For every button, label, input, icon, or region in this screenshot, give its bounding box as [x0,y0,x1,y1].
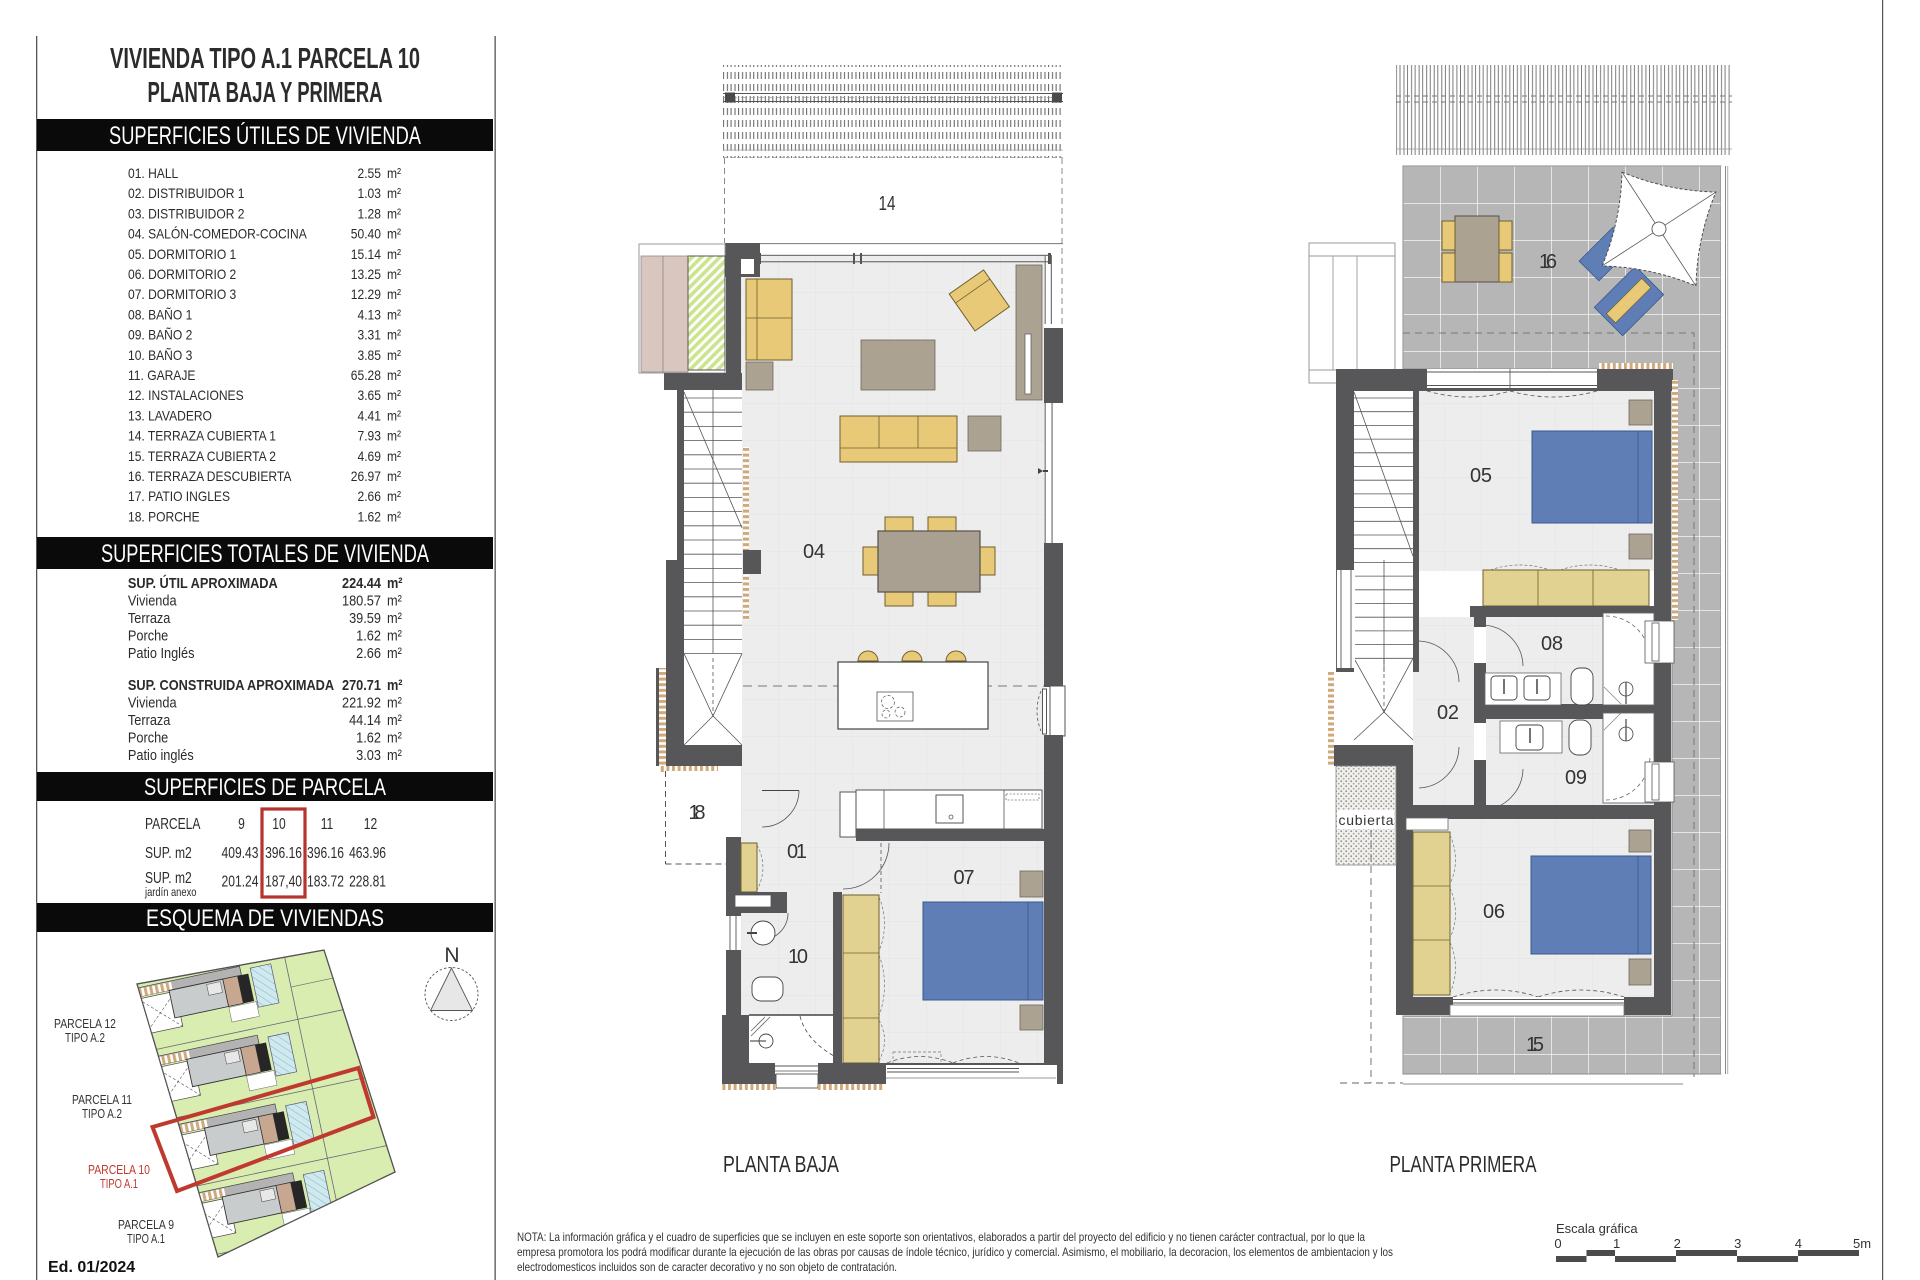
svg-text:11. GARAJE: 11. GARAJE [128,367,196,383]
svg-text:11: 11 [321,815,334,833]
svg-text:50.40: 50.40 [351,226,381,242]
svg-text:m²: m² [387,626,402,643]
svg-text:39.59: 39.59 [349,609,381,626]
svg-text:270.71: 270.71 [342,676,381,693]
svg-text:183.72: 183.72 [307,872,344,890]
svg-text:01: 01 [787,841,807,863]
svg-text:05: 05 [1470,465,1492,487]
svg-text:Porche: Porche [128,728,169,745]
svg-text:Patio Inglés: Patio Inglés [128,644,195,661]
svg-text:m²: m² [387,693,402,710]
svg-text:m²: m² [387,286,402,302]
svg-text:empresa promotora los podrá: empresa promotora los podrá modificar du… [517,1245,1393,1259]
svg-text:m²: m² [387,367,402,383]
svg-text:PLANTA PRIMERA: PLANTA PRIMERA [1390,1151,1537,1177]
svg-text:SUP. m2: SUP. m2 [145,844,192,862]
svg-text:PARCELA 9: PARCELA 9 [118,1218,174,1232]
svg-text:65.28: 65.28 [351,367,381,383]
svg-text:396.16: 396.16 [265,844,302,862]
svg-text:m²: m² [387,306,402,322]
svg-text:m²: m² [387,676,403,693]
svg-text:5m: 5m [1853,1236,1871,1251]
svg-text:Vivienda: Vivienda [128,693,177,710]
svg-text:0: 0 [1554,1236,1561,1251]
svg-text:09. BAÑO 2: 09. BAÑO 2 [128,327,192,343]
svg-text:PLANTA BAJA Y PRIMERA: PLANTA BAJA Y PRIMERA [148,77,383,109]
svg-text:2.55: 2.55 [358,165,381,181]
svg-text:14: 14 [879,193,896,215]
svg-text:13.25: 13.25 [351,266,381,282]
svg-text:m²: m² [387,266,402,282]
svg-text:3.65: 3.65 [358,387,381,403]
svg-text:3.03: 3.03 [356,746,381,763]
svg-text:12.29: 12.29 [351,286,381,302]
svg-text:1.62: 1.62 [356,728,381,745]
svg-text:396.16: 396.16 [307,844,344,862]
svg-text:12. INSTALACIONES: 12. INSTALACIONES [128,387,244,403]
svg-text:15.14: 15.14 [351,246,381,262]
svg-text:06: 06 [1483,901,1505,923]
svg-text:05. DORMITORIO 1: 05. DORMITORIO 1 [128,246,236,262]
svg-text:180.57: 180.57 [342,591,381,608]
svg-text:SUPERFICIES DE PARCELA: SUPERFICIES DE PARCELA [144,774,386,801]
svg-text:08: 08 [1541,633,1563,655]
svg-text:m²: m² [387,591,402,608]
svg-text:Terraza: Terraza [128,609,171,626]
svg-text:02: 02 [1437,702,1459,724]
svg-text:m²: m² [387,468,402,484]
svg-text:m²: m² [387,165,402,181]
svg-text:m²: m² [387,488,402,504]
svg-text:10: 10 [272,815,286,833]
svg-text:PARCELA 10: PARCELA 10 [88,1163,150,1177]
svg-text:Vivienda: Vivienda [128,591,177,608]
svg-text:44.14: 44.14 [349,711,381,728]
svg-text:m²: m² [387,508,402,524]
svg-text:m²: m² [387,205,402,221]
svg-text:TIPO A.1: TIPO A.1 [127,1232,165,1246]
svg-text:2.66: 2.66 [358,488,381,504]
svg-text:SUPERFICIES TOTALES DE VIVIEND: SUPERFICIES TOTALES DE VIVIENDA [101,540,429,568]
svg-text:SUPERFICIES ÚTILES DE VIVIENDA: SUPERFICIES ÚTILES DE VIVIENDA [109,121,421,150]
svg-text:electrodomesticos incluidos so: electrodomesticos incluidos son de carac… [517,1260,897,1274]
svg-text:PARCELA: PARCELA [145,815,201,833]
svg-text:409.43: 409.43 [222,844,259,862]
svg-text:07: 07 [954,867,975,889]
svg-text:m²: m² [387,407,402,423]
svg-text:14. TERRAZA CUBIERTA 1: 14. TERRAZA CUBIERTA 1 [128,428,276,444]
svg-text:SUP. ÚTIL APROXIMADA: SUP. ÚTIL APROXIMADA [128,573,278,591]
svg-text:m²: m² [387,574,403,591]
svg-text:16. TERRAZA DESCUBIERTA: 16. TERRAZA DESCUBIERTA [128,468,292,484]
svg-text:01. HALL: 01. HALL [128,165,178,181]
svg-text:03. DISTRIBUIDOR 2: 03. DISTRIBUIDOR 2 [128,205,245,221]
svg-text:Terraza: Terraza [128,711,171,728]
svg-text:187,40: 187,40 [265,872,302,890]
svg-text:N: N [444,944,459,967]
svg-text:26.97: 26.97 [351,468,381,484]
svg-text:3: 3 [1734,1236,1741,1251]
svg-text:16: 16 [1539,251,1557,273]
svg-text:m²: m² [387,644,402,661]
svg-text:7.93: 7.93 [358,428,381,444]
svg-text:m²: m² [387,728,402,745]
svg-text:4: 4 [1795,1236,1802,1251]
svg-text:jardín anexo: jardín anexo [144,886,196,899]
svg-text:15. TERRAZA CUBIERTA 2: 15. TERRAZA CUBIERTA 2 [128,448,276,464]
svg-text:18. PORCHE: 18. PORCHE [128,508,200,524]
svg-text:15: 15 [1526,1034,1544,1056]
svg-text:3.85: 3.85 [358,347,381,363]
svg-text:228.81: 228.81 [349,872,386,890]
svg-text:1.62: 1.62 [356,626,381,643]
svg-text:Patio inglés: Patio inglés [128,746,194,763]
svg-text:07. DORMITORIO 3: 07. DORMITORIO 3 [128,286,236,302]
svg-text:m²: m² [387,226,402,242]
svg-text:02. DISTRIBUIDOR 1: 02. DISTRIBUIDOR 1 [128,185,245,201]
svg-text:4.13: 4.13 [358,306,381,322]
svg-text:PARCELA 11: PARCELA 11 [72,1093,132,1107]
svg-text:06. DORMITORIO 2: 06. DORMITORIO 2 [128,266,236,282]
svg-text:9: 9 [238,815,245,833]
svg-text:2: 2 [1674,1236,1681,1251]
svg-text:08. BAÑO 1: 08. BAÑO 1 [128,306,192,322]
svg-text:1: 1 [1613,1236,1620,1251]
svg-text:TIPO A.2: TIPO A.2 [65,1031,105,1045]
svg-text:09: 09 [1565,767,1587,789]
svg-text:224.44: 224.44 [342,574,381,591]
svg-text:10: 10 [788,946,808,968]
svg-text:1.62: 1.62 [358,508,381,524]
svg-text:3.31: 3.31 [358,327,381,343]
svg-text:NOTA: La información gráfic: NOTA: La información gráfica y el cuadro… [517,1230,1365,1244]
svg-text:04. SALÓN-COMEDOR-COCINA: 04. SALÓN-COMEDOR-COCINA [128,226,307,242]
svg-text:Escala gráfica: Escala gráfica [1556,1221,1638,1236]
svg-text:SUP. m2: SUP. m2 [145,869,192,887]
svg-text:463.96: 463.96 [349,844,386,862]
svg-text:1.28: 1.28 [358,205,381,221]
svg-text:SUP. CONSTRUIDA APROXIMADA: SUP. CONSTRUIDA APROXIMADA [128,676,334,693]
svg-text:m²: m² [387,185,402,201]
svg-text:m²: m² [387,428,402,444]
svg-text:PLANTA BAJA: PLANTA BAJA [723,1151,839,1177]
svg-text:VIVIENDA TIPO A.1 PARCELA 10: VIVIENDA TIPO A.1 PARCELA 10 [110,43,420,75]
svg-text:12: 12 [364,815,378,833]
svg-text:m²: m² [387,746,402,763]
svg-text:m²: m² [387,448,402,464]
svg-text:m²: m² [387,711,402,728]
svg-text:m²: m² [387,347,402,363]
svg-text:04: 04 [803,541,825,563]
svg-text:4.69: 4.69 [358,448,381,464]
svg-text:Ed. 01/2024: Ed. 01/2024 [48,1259,135,1276]
svg-text:17. PATIO INGLES: 17. PATIO INGLES [128,488,230,504]
svg-text:m²: m² [387,246,402,262]
svg-text:201.24: 201.24 [222,872,259,890]
svg-text:cubierta: cubierta [1339,812,1394,828]
svg-text:PARCELA 12: PARCELA 12 [54,1017,116,1031]
svg-text:Porche: Porche [128,626,169,643]
svg-text:221.92: 221.92 [342,693,381,710]
svg-text:1.03: 1.03 [358,185,381,201]
svg-text:TIPO A.1: TIPO A.1 [100,1177,138,1191]
svg-text:TIPO A.2: TIPO A.2 [82,1107,122,1121]
svg-text:10. BAÑO 3: 10. BAÑO 3 [128,347,192,363]
svg-text:m²: m² [387,609,402,626]
svg-text:m²: m² [387,387,402,403]
svg-text:18: 18 [689,802,706,824]
svg-text:m²: m² [387,327,402,343]
svg-text:4.41: 4.41 [358,407,381,423]
svg-text:2.66: 2.66 [356,644,381,661]
svg-text:ESQUEMA DE VIVIENDAS: ESQUEMA DE VIVIENDAS [146,905,384,932]
svg-text:13. LAVADERO: 13. LAVADERO [128,407,212,423]
